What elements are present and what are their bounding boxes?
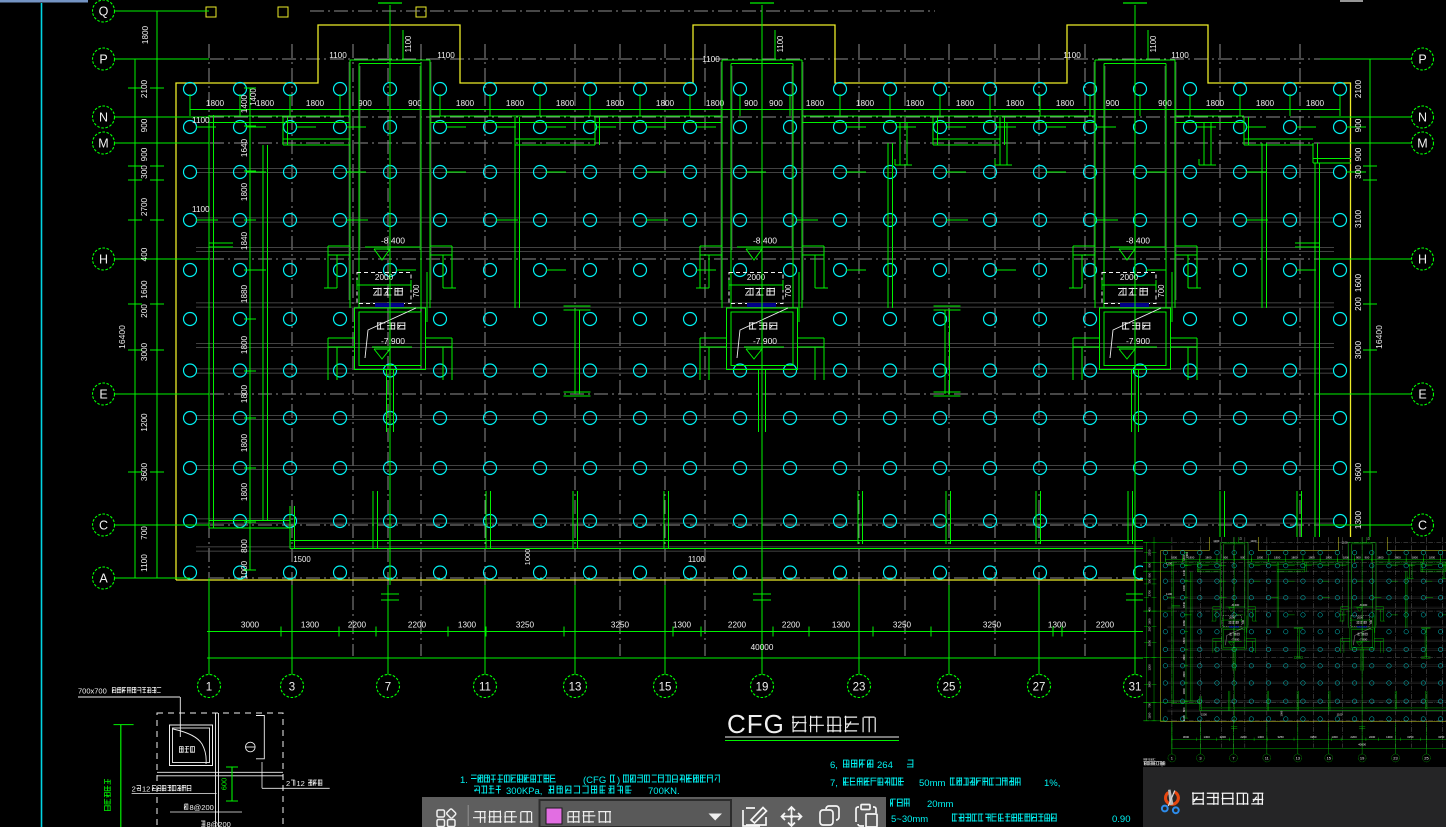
svg-text:700: 700	[412, 284, 421, 298]
svg-text:3250: 3250	[983, 621, 1002, 630]
svg-text:3000: 3000	[140, 342, 149, 361]
svg-text:1100: 1100	[1171, 51, 1189, 60]
svg-text:1300: 1300	[458, 621, 477, 630]
svg-text:2200: 2200	[348, 621, 367, 630]
svg-text:700: 700	[140, 526, 149, 540]
svg-text:264: 264	[877, 760, 893, 771]
svg-text:900: 900	[1158, 99, 1172, 108]
svg-text:0.90: 0.90	[1112, 814, 1131, 825]
svg-text:15: 15	[659, 682, 672, 694]
svg-text:1800: 1800	[1256, 99, 1275, 108]
svg-text:1100: 1100	[140, 554, 149, 572]
svg-text:400: 400	[140, 247, 149, 261]
svg-text:2700: 2700	[140, 197, 149, 216]
svg-text:40000: 40000	[751, 643, 774, 652]
svg-text:1: 1	[206, 682, 212, 694]
svg-text:2100: 2100	[140, 79, 149, 98]
svg-text:16400: 16400	[1374, 325, 1384, 349]
svg-text:1100: 1100	[776, 35, 785, 52]
svg-text:1100: 1100	[329, 51, 347, 60]
svg-text:7: 7	[385, 682, 391, 694]
svg-text:12: 12	[297, 779, 305, 788]
svg-text:900: 900	[1354, 147, 1363, 161]
svg-text:(CFG: (CFG	[583, 775, 606, 786]
svg-text:A: A	[99, 572, 108, 586]
svg-text:2200: 2200	[782, 621, 801, 630]
svg-text:1100: 1100	[1149, 35, 1158, 52]
svg-text:3100: 3100	[1354, 209, 1363, 228]
svg-text:3600: 3600	[140, 462, 149, 481]
svg-text:H: H	[99, 253, 108, 267]
svg-text:1800: 1800	[906, 99, 925, 108]
svg-text:2: 2	[132, 785, 136, 794]
svg-text:1840: 1840	[240, 231, 249, 250]
svg-text:1100: 1100	[404, 35, 413, 52]
svg-text:1000: 1000	[523, 549, 532, 566]
svg-text:25: 25	[943, 682, 956, 694]
svg-text:3250: 3250	[893, 621, 912, 630]
svg-text:600: 600	[220, 778, 229, 791]
svg-text:2000: 2000	[747, 273, 766, 282]
svg-text:1800: 1800	[240, 182, 249, 201]
svg-text:1100: 1100	[688, 555, 705, 564]
svg-text:1800: 1800	[240, 433, 249, 452]
svg-text:1640: 1640	[240, 138, 249, 157]
svg-text:1600: 1600	[1354, 273, 1363, 292]
svg-text:800: 800	[240, 539, 249, 553]
svg-text:H: H	[1418, 253, 1427, 267]
svg-text:3250: 3250	[516, 621, 535, 630]
svg-text:700: 700	[1157, 284, 1166, 298]
svg-text:1400: 1400	[240, 94, 249, 113]
svg-text:6,: 6,	[830, 760, 838, 771]
svg-text:1800: 1800	[306, 99, 325, 108]
svg-text:1100: 1100	[1063, 51, 1081, 60]
svg-text:N: N	[99, 111, 108, 125]
svg-text:1800: 1800	[1306, 99, 1325, 108]
svg-text:1800: 1800	[240, 384, 249, 403]
svg-text:50mm: 50mm	[919, 778, 945, 789]
svg-text:300KPa,: 300KPa,	[506, 786, 542, 797]
svg-text:1800: 1800	[141, 25, 150, 44]
svg-text:1800: 1800	[240, 482, 249, 501]
svg-text:1300: 1300	[832, 621, 851, 630]
svg-text:700KN.: 700KN.	[648, 786, 680, 797]
svg-text:200: 200	[1354, 297, 1363, 311]
svg-text:7,: 7,	[830, 778, 838, 789]
svg-text:CFG: CFG	[727, 709, 785, 739]
svg-text:1200: 1200	[140, 413, 149, 432]
svg-text:E: E	[99, 388, 107, 402]
svg-text:1300: 1300	[1354, 510, 1363, 529]
svg-text:31: 31	[1129, 682, 1142, 694]
svg-text:1100: 1100	[437, 51, 455, 60]
svg-text:M: M	[1417, 137, 1427, 151]
svg-text:P: P	[1418, 53, 1426, 67]
svg-text:C: C	[99, 519, 108, 533]
svg-text:5~30mm: 5~30mm	[891, 814, 928, 825]
svg-text:1800: 1800	[556, 99, 575, 108]
svg-text:): )	[617, 775, 620, 786]
svg-text:13: 13	[569, 682, 582, 694]
svg-text:900: 900	[1106, 99, 1120, 108]
svg-text:-8.400: -8.400	[753, 236, 777, 246]
svg-text:900: 900	[358, 99, 372, 108]
svg-text:M: M	[98, 137, 108, 151]
svg-text:1%,: 1%,	[1044, 778, 1060, 789]
svg-text:19: 19	[756, 682, 769, 694]
svg-text:1800: 1800	[240, 335, 249, 354]
svg-text:2000: 2000	[1120, 273, 1139, 282]
svg-text:2200: 2200	[408, 621, 427, 630]
svg-text:12: 12	[142, 785, 150, 794]
svg-text:2: 2	[286, 779, 290, 788]
svg-text:1800: 1800	[956, 99, 975, 108]
svg-text:200: 200	[140, 304, 149, 318]
svg-text:3000: 3000	[1354, 340, 1363, 359]
svg-text:900: 900	[1354, 118, 1363, 132]
svg-text:1800: 1800	[506, 99, 525, 108]
svg-text:8@200: 8@200	[207, 820, 231, 827]
svg-text:1100: 1100	[192, 116, 210, 125]
svg-text:27: 27	[1033, 682, 1046, 694]
svg-text:3600: 3600	[1354, 462, 1363, 481]
svg-text:P: P	[99, 53, 107, 67]
svg-text:1.: 1.	[460, 775, 468, 786]
svg-text:1100: 1100	[702, 55, 720, 64]
svg-text:1600: 1600	[140, 280, 149, 299]
svg-text:700: 700	[784, 284, 793, 298]
svg-text:1400: 1400	[249, 88, 258, 106]
svg-text:300: 300	[1354, 165, 1363, 179]
svg-text:11: 11	[479, 682, 491, 694]
svg-text:-7.900: -7.900	[753, 336, 777, 346]
svg-text:1800: 1800	[656, 99, 675, 108]
svg-text:1800: 1800	[1056, 99, 1075, 108]
svg-text:1300: 1300	[673, 621, 692, 630]
svg-text:300: 300	[140, 165, 149, 179]
svg-text:1300: 1300	[301, 621, 320, 630]
svg-text:2200: 2200	[1096, 621, 1115, 630]
svg-text:1100: 1100	[192, 205, 210, 214]
svg-text:3: 3	[289, 682, 295, 694]
svg-text:1800: 1800	[206, 99, 225, 108]
svg-text:20mm: 20mm	[927, 799, 953, 810]
svg-text:1800: 1800	[806, 99, 825, 108]
svg-text:2100: 2100	[1354, 79, 1363, 98]
svg-text:900: 900	[140, 118, 149, 132]
svg-text:-8.400: -8.400	[381, 236, 405, 246]
svg-text:3250: 3250	[611, 621, 630, 630]
svg-text:Q: Q	[99, 5, 109, 19]
svg-text:900: 900	[140, 147, 149, 161]
svg-text:900: 900	[769, 99, 783, 108]
svg-text:-7.900: -7.900	[1126, 336, 1150, 346]
svg-text:1800: 1800	[456, 99, 475, 108]
svg-text:900: 900	[744, 99, 758, 108]
svg-text:23: 23	[853, 682, 866, 694]
svg-text:900: 900	[408, 99, 422, 108]
svg-text:2000: 2000	[375, 273, 394, 282]
svg-text:3000: 3000	[241, 621, 260, 630]
svg-text:1800: 1800	[1006, 99, 1025, 108]
svg-text:1880: 1880	[240, 284, 249, 303]
svg-text:2200: 2200	[728, 621, 747, 630]
svg-text:-7.900: -7.900	[381, 336, 405, 346]
svg-text:-8.400: -8.400	[1126, 236, 1150, 246]
svg-text:1800: 1800	[256, 99, 275, 108]
svg-text:C: C	[1418, 519, 1427, 533]
svg-text:16400: 16400	[117, 325, 127, 349]
svg-text:1800: 1800	[606, 99, 625, 108]
svg-text:8@200: 8@200	[190, 803, 214, 812]
svg-text:1300: 1300	[1048, 621, 1067, 630]
svg-text:N: N	[1418, 111, 1427, 125]
svg-text:1500: 1500	[293, 555, 311, 564]
svg-text:E: E	[1418, 388, 1426, 402]
svg-text:1800: 1800	[1206, 99, 1225, 108]
svg-text:700x700: 700x700	[78, 687, 107, 696]
svg-text:1800: 1800	[856, 99, 875, 108]
